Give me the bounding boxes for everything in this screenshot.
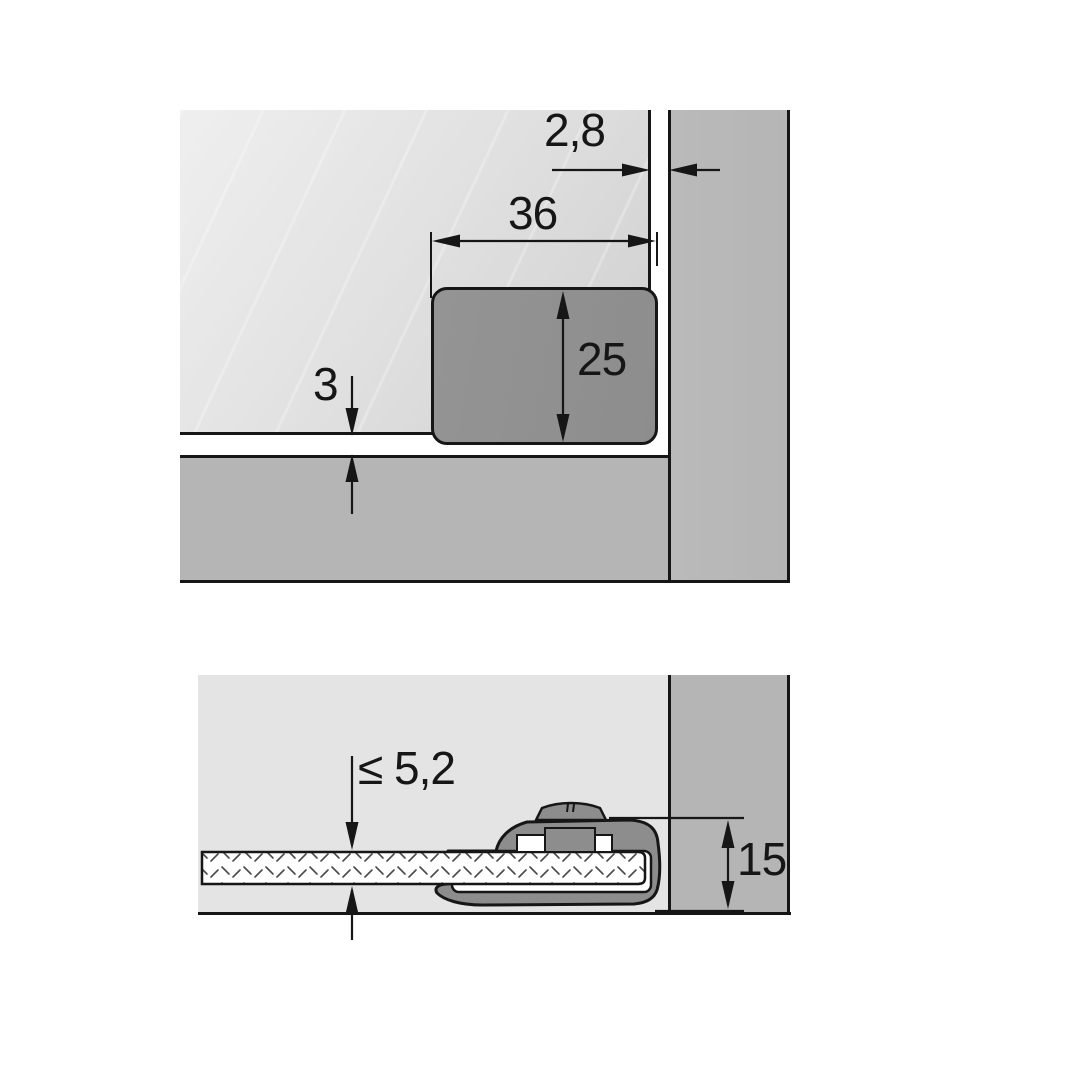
label-door-side-gap: 2,8 xyxy=(544,107,605,153)
arrowhead-left xyxy=(669,164,697,177)
glass-clamp-fitting xyxy=(202,803,660,905)
arrowhead-up xyxy=(346,454,359,482)
label-fitting-height: 15 xyxy=(737,836,786,882)
glass-shelf-hatch xyxy=(202,852,645,884)
arrowhead-right xyxy=(628,235,656,248)
arrowhead-down xyxy=(346,408,359,436)
arrowhead-down xyxy=(557,414,570,442)
dimension-catch-height xyxy=(557,291,570,442)
arrowhead-up xyxy=(346,886,359,914)
label-door-bottom-gap: 3 xyxy=(313,361,338,407)
linework-overlay xyxy=(0,0,1080,1080)
arrowhead-down xyxy=(346,822,359,850)
dimension-catch-width xyxy=(431,232,657,298)
clamp-screw-knob xyxy=(536,803,606,820)
label-catch-width: 36 xyxy=(508,190,557,236)
technical-drawing: 2,8 36 25 3 ≤ 5,2 15 xyxy=(0,0,1080,1080)
arrowhead-down xyxy=(722,881,735,909)
arrowhead-up xyxy=(557,291,570,319)
arrowhead-up xyxy=(722,820,735,848)
arrowhead-right xyxy=(622,164,650,177)
label-catch-height: 25 xyxy=(577,336,626,382)
dimension-door-bottom-gap xyxy=(346,376,359,514)
dimension-glass-thickness xyxy=(346,756,359,940)
arrowhead-left xyxy=(432,235,460,248)
label-glass-thickness: ≤ 5,2 xyxy=(358,745,455,791)
clamp-pad xyxy=(545,828,595,852)
dimension-door-side-gap xyxy=(552,164,720,177)
